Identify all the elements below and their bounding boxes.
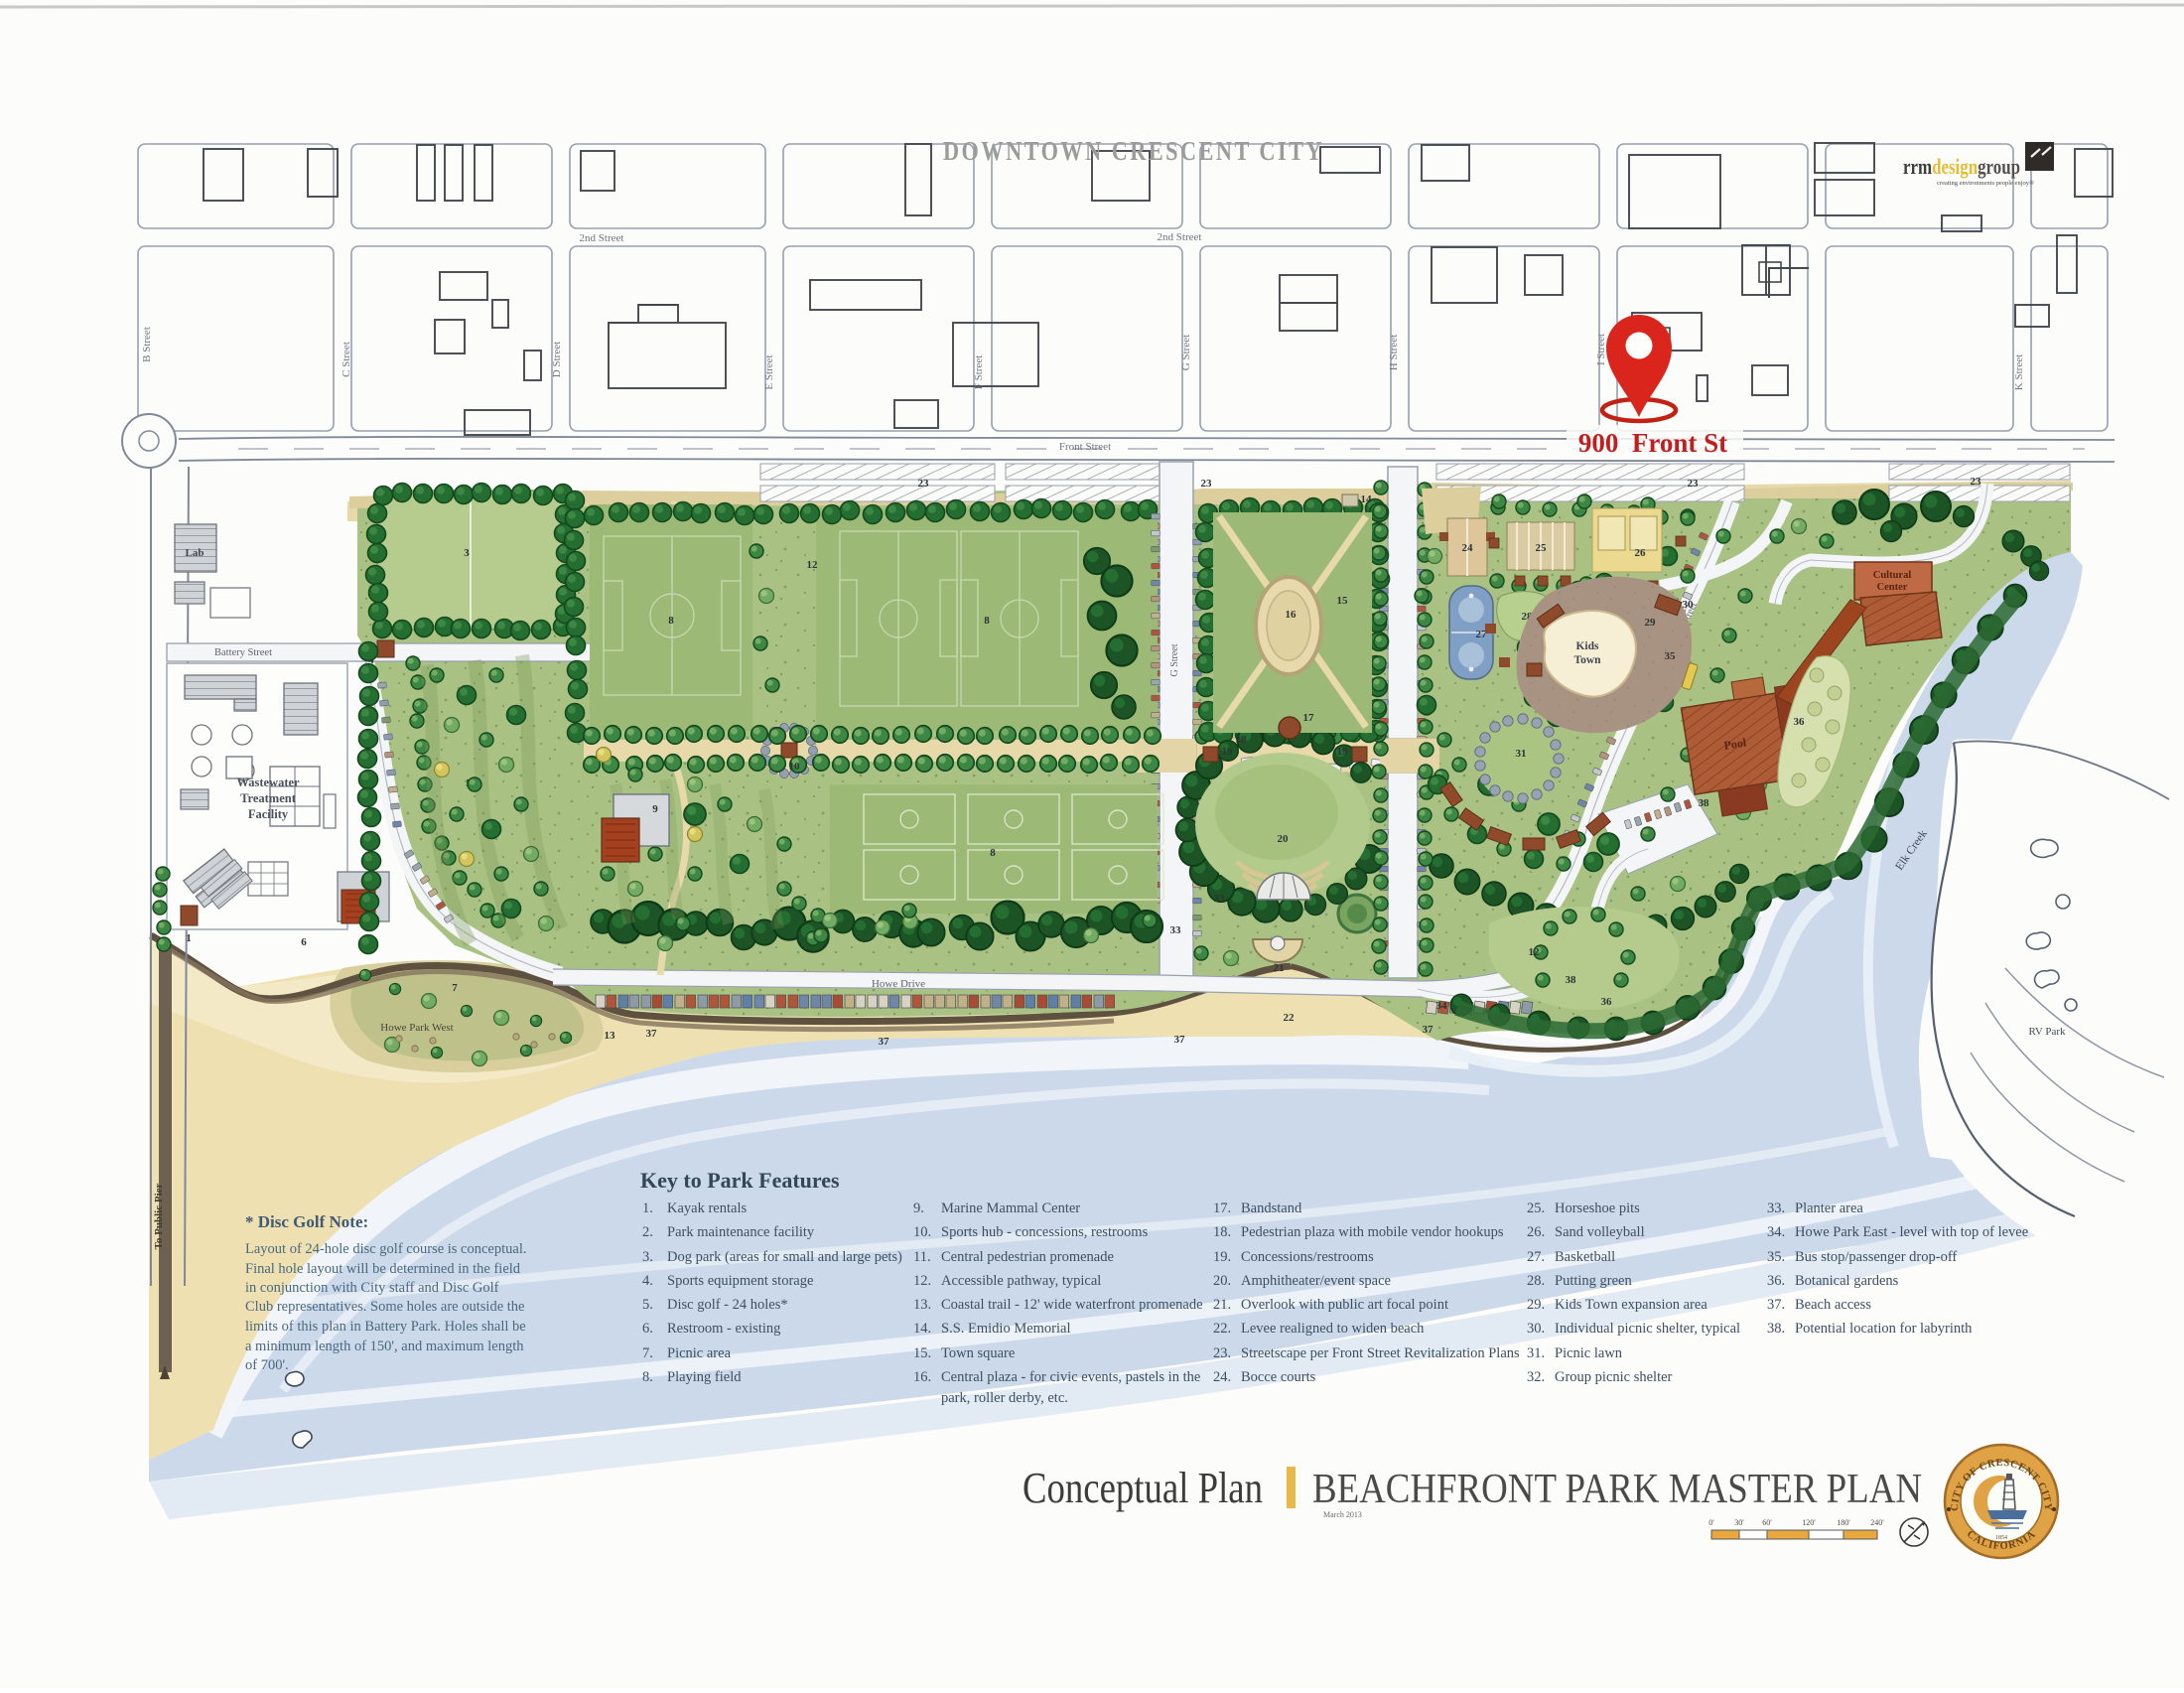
svg-text:Final hole layout will be dete: Final hole layout will be determined in … bbox=[245, 1261, 521, 1277]
svg-text:23: 23 bbox=[918, 478, 930, 490]
svg-text:E Street: E Street bbox=[763, 354, 775, 389]
svg-text:30: 30 bbox=[1683, 599, 1695, 611]
svg-text:23: 23 bbox=[1201, 478, 1213, 490]
svg-text:33: 33 bbox=[1170, 924, 1182, 936]
svg-text:D Street: D Street bbox=[551, 342, 563, 377]
svg-text:9: 9 bbox=[652, 803, 658, 815]
svg-text:Basketball: Basketball bbox=[1555, 1249, 1615, 1265]
svg-text:Overlook with public art focal: Overlook with public art focal point bbox=[1241, 1297, 1448, 1313]
svg-text:13: 13 bbox=[605, 1030, 616, 1042]
svg-text:180': 180' bbox=[1837, 1518, 1850, 1527]
svg-text:17: 17 bbox=[1303, 712, 1315, 724]
svg-text:Botanical gardens: Botanical gardens bbox=[1795, 1273, 1899, 1289]
svg-text:Beach access: Beach access bbox=[1795, 1297, 1871, 1313]
svg-text:26: 26 bbox=[1635, 547, 1647, 559]
svg-text:Kids: Kids bbox=[1575, 640, 1599, 652]
svg-text:Kayak rentals: Kayak rentals bbox=[667, 1200, 747, 1216]
svg-text:limits of this plan in Battery: limits of this plan in Battery Park. Hol… bbox=[245, 1319, 526, 1335]
svg-text:Club representatives. Some hol: Club representatives. Some holes are out… bbox=[245, 1299, 524, 1315]
svg-text:Central pedestrian promenade: Central pedestrian promenade bbox=[941, 1249, 1114, 1265]
svg-text:8: 8 bbox=[990, 847, 996, 859]
svg-text:30.: 30. bbox=[1527, 1321, 1545, 1337]
svg-text:36: 36 bbox=[1794, 716, 1806, 728]
svg-text:Facility: Facility bbox=[248, 807, 289, 821]
svg-text:120': 120' bbox=[1802, 1518, 1816, 1527]
svg-text:To Public Pier: To Public Pier bbox=[153, 1183, 165, 1249]
svg-text:Layout of 24-hole disc golf co: Layout of 24-hole disc golf course is co… bbox=[245, 1241, 526, 1257]
svg-text:S.S. Emidio Memorial: S.S. Emidio Memorial bbox=[941, 1321, 1071, 1337]
svg-text:of 700'.: of 700'. bbox=[245, 1357, 289, 1373]
svg-text:3.: 3. bbox=[642, 1249, 653, 1265]
svg-text:Picnic area: Picnic area bbox=[667, 1345, 732, 1361]
svg-text:Accessible pathway, typical: Accessible pathway, typical bbox=[941, 1273, 1101, 1289]
svg-text:8: 8 bbox=[984, 615, 990, 627]
svg-text:23: 23 bbox=[1971, 476, 1982, 488]
svg-text:60': 60' bbox=[1762, 1518, 1772, 1527]
svg-text:RV Park: RV Park bbox=[2028, 1026, 2066, 1038]
svg-text:March 2013: March 2013 bbox=[1323, 1510, 1362, 1519]
svg-text:Group picnic shelter: Group picnic shelter bbox=[1555, 1369, 1673, 1385]
svg-text:Treatment: Treatment bbox=[240, 791, 297, 805]
svg-text:18: 18 bbox=[1236, 734, 1248, 746]
svg-text:37: 37 bbox=[879, 1036, 890, 1048]
svg-text:Concessions/restrooms: Concessions/restrooms bbox=[1241, 1249, 1374, 1265]
svg-text:15.: 15. bbox=[913, 1345, 931, 1361]
svg-text:Restroom - existing: Restroom - existing bbox=[667, 1321, 780, 1337]
svg-text:35.: 35. bbox=[1767, 1249, 1785, 1265]
svg-text:Front Street: Front Street bbox=[1059, 441, 1111, 453]
svg-text:38: 38 bbox=[1566, 974, 1577, 986]
svg-text:Center: Center bbox=[1877, 582, 1908, 593]
svg-text:Picnic lawn: Picnic lawn bbox=[1555, 1345, 1623, 1361]
svg-text:* Disc Golf Note:: * Disc Golf Note: bbox=[245, 1212, 368, 1231]
svg-text:14.: 14. bbox=[913, 1321, 931, 1337]
svg-text:Horseshoe pits: Horseshoe pits bbox=[1555, 1200, 1640, 1216]
svg-text:37: 37 bbox=[646, 1028, 658, 1040]
svg-text:29: 29 bbox=[1645, 617, 1657, 629]
svg-text:25: 25 bbox=[1536, 542, 1548, 554]
svg-text:Town: Town bbox=[1573, 654, 1601, 666]
svg-text:36.: 36. bbox=[1767, 1273, 1785, 1289]
svg-text:Disc golf - 24 holes*: Disc golf - 24 holes* bbox=[667, 1297, 788, 1313]
svg-text:Bandstand: Bandstand bbox=[1241, 1200, 1302, 1216]
svg-text:Putting green: Putting green bbox=[1555, 1273, 1632, 1289]
svg-text:24.: 24. bbox=[1213, 1369, 1231, 1385]
svg-text:DOWNTOWN CRESCENT CITY: DOWNTOWN CRESCENT CITY bbox=[943, 136, 1324, 166]
svg-text:18.: 18. bbox=[1213, 1224, 1231, 1240]
svg-text:Town square: Town square bbox=[941, 1345, 1015, 1361]
svg-text:2nd Street: 2nd Street bbox=[580, 232, 624, 244]
svg-text:park, roller derby, etc.: park, roller derby, etc. bbox=[941, 1390, 1068, 1406]
svg-text:36: 36 bbox=[1601, 996, 1613, 1008]
svg-text:1.: 1. bbox=[642, 1200, 653, 1216]
svg-text:19: 19 bbox=[1222, 746, 1234, 758]
svg-text:Marine Mammal Center: Marine Mammal Center bbox=[941, 1200, 1080, 1216]
svg-text:21.: 21. bbox=[1213, 1297, 1231, 1313]
svg-text:0': 0' bbox=[1708, 1518, 1714, 1527]
svg-text:19.: 19. bbox=[1213, 1249, 1231, 1265]
svg-text:15: 15 bbox=[1337, 595, 1349, 607]
svg-text:12: 12 bbox=[1529, 946, 1541, 958]
svg-text:12: 12 bbox=[807, 559, 819, 571]
svg-text:32.: 32. bbox=[1527, 1369, 1545, 1385]
svg-text:3: 3 bbox=[464, 547, 470, 559]
svg-text:16: 16 bbox=[1286, 609, 1297, 621]
svg-text:K Street: K Street bbox=[2013, 354, 2025, 390]
svg-text:23.: 23. bbox=[1213, 1345, 1231, 1361]
svg-text:G Street: G Street bbox=[1180, 335, 1192, 370]
svg-text:17.: 17. bbox=[1213, 1200, 1231, 1216]
svg-text:Potential location for labyrin: Potential location for labyrinth bbox=[1795, 1321, 1973, 1337]
svg-text:5.: 5. bbox=[642, 1297, 653, 1313]
svg-text:Conceptual Plan: Conceptual Plan bbox=[1023, 1464, 1263, 1512]
svg-text:Dog park (areas for small and: Dog park (areas for small and large pets… bbox=[667, 1249, 902, 1265]
svg-text:Park maintenance facility: Park maintenance facility bbox=[667, 1224, 815, 1240]
svg-text:22.: 22. bbox=[1213, 1321, 1231, 1337]
svg-text:rrmdesigngroup: rrmdesigngroup bbox=[1903, 154, 2020, 179]
svg-text:a minimum length of 150', and: a minimum length of 150', and maximum le… bbox=[245, 1339, 524, 1354]
svg-text:Planter area: Planter area bbox=[1795, 1200, 1863, 1216]
svg-text:Battery Street: Battery Street bbox=[214, 647, 272, 658]
svg-text:Central plaza - for civic even: Central plaza - for civic events, pastel… bbox=[941, 1369, 1200, 1385]
svg-text:38.: 38. bbox=[1767, 1321, 1785, 1337]
svg-text:4.: 4. bbox=[642, 1273, 653, 1289]
svg-text:24: 24 bbox=[1462, 542, 1474, 554]
svg-text:20: 20 bbox=[1278, 833, 1290, 845]
svg-text:Sports hub - concessions, rest: Sports hub - concessions, restrooms bbox=[941, 1224, 1149, 1240]
svg-text:10: 10 bbox=[789, 761, 801, 773]
svg-text:8.: 8. bbox=[642, 1369, 653, 1385]
svg-text:1: 1 bbox=[186, 932, 192, 944]
svg-text:I Street: I Street bbox=[1595, 334, 1607, 365]
svg-text:28.: 28. bbox=[1527, 1273, 1545, 1289]
svg-text:37: 37 bbox=[1174, 1034, 1186, 1046]
svg-text:34: 34 bbox=[1436, 1000, 1448, 1012]
svg-text:31: 31 bbox=[1516, 748, 1527, 760]
svg-text:30': 30' bbox=[1734, 1518, 1744, 1527]
svg-text:38: 38 bbox=[1699, 797, 1710, 809]
svg-text:240': 240' bbox=[1870, 1518, 1884, 1527]
svg-text:H Street: H Street bbox=[1388, 335, 1400, 370]
svg-text:Kids Town expansion area: Kids Town expansion area bbox=[1555, 1297, 1707, 1313]
svg-text:Cultural: Cultural bbox=[1873, 570, 1912, 581]
svg-text:21: 21 bbox=[1274, 962, 1285, 974]
svg-text:7.: 7. bbox=[642, 1345, 653, 1361]
svg-text:9.: 9. bbox=[913, 1200, 924, 1216]
svg-text:Key to Park Features: Key to Park Features bbox=[640, 1168, 840, 1193]
svg-text:Sports equipment storage: Sports equipment storage bbox=[667, 1273, 813, 1289]
svg-text:31.: 31. bbox=[1527, 1345, 1545, 1361]
svg-text:Sand volleyball: Sand volleyball bbox=[1555, 1224, 1645, 1240]
svg-text:2.: 2. bbox=[642, 1224, 653, 1240]
svg-text:Levee realigned to widen beach: Levee realigned to widen beach bbox=[1241, 1321, 1425, 1337]
svg-text:6.: 6. bbox=[642, 1321, 653, 1337]
svg-text:7: 7 bbox=[452, 982, 458, 994]
svg-text:23: 23 bbox=[1688, 478, 1700, 490]
svg-text:F Street: F Street bbox=[973, 355, 985, 390]
svg-text:34.: 34. bbox=[1767, 1224, 1785, 1240]
svg-text:Lab: Lab bbox=[186, 547, 205, 559]
svg-text:Individual picnic shelter, typ: Individual picnic shelter, typical bbox=[1555, 1321, 1740, 1337]
svg-text:26.: 26. bbox=[1527, 1224, 1545, 1240]
svg-text:10.: 10. bbox=[913, 1224, 931, 1240]
svg-text:25.: 25. bbox=[1527, 1200, 1545, 1216]
svg-text:20.: 20. bbox=[1213, 1273, 1231, 1289]
svg-text:C Street: C Street bbox=[341, 342, 352, 377]
svg-text:27.: 27. bbox=[1527, 1249, 1545, 1265]
svg-text:Playing field: Playing field bbox=[667, 1369, 742, 1385]
svg-text:Bus stop/passenger drop-off: Bus stop/passenger drop-off bbox=[1795, 1249, 1957, 1265]
svg-text:22: 22 bbox=[1284, 1012, 1296, 1024]
svg-text:Coastal trail - 12' wide water: Coastal trail - 12' wide waterfront prom… bbox=[941, 1297, 1203, 1313]
svg-text:Amphitheater/event space: Amphitheater/event space bbox=[1241, 1273, 1391, 1289]
svg-text:11.: 11. bbox=[913, 1249, 931, 1265]
svg-text:2nd Street: 2nd Street bbox=[1158, 231, 1202, 243]
svg-text:13.: 13. bbox=[913, 1297, 931, 1313]
svg-text:33: 33 bbox=[1214, 893, 1226, 905]
svg-text:Wastewater: Wastewater bbox=[236, 776, 300, 789]
svg-text:900 Front St: 900 Front St bbox=[1578, 428, 1727, 458]
svg-text:12.: 12. bbox=[913, 1273, 931, 1289]
svg-text:16.: 16. bbox=[913, 1369, 931, 1385]
svg-text:Bocce courts: Bocce courts bbox=[1241, 1369, 1316, 1385]
svg-text:37.: 37. bbox=[1767, 1297, 1785, 1313]
svg-text:Pedestrian plaza with mobile v: Pedestrian plaza with mobile vendor hook… bbox=[1241, 1224, 1504, 1240]
svg-text:29.: 29. bbox=[1527, 1297, 1545, 1313]
svg-text:1854: 1854 bbox=[1995, 1535, 2007, 1541]
svg-text:14: 14 bbox=[1361, 494, 1373, 505]
svg-text:creating environments people e: creating environments people enjoy® bbox=[1937, 180, 2034, 187]
svg-text:BEACHFRONT PARK MASTER PLAN: BEACHFRONT PARK MASTER PLAN bbox=[1312, 1467, 1922, 1512]
svg-text:G Street: G Street bbox=[1169, 643, 1180, 676]
svg-text:35: 35 bbox=[1665, 650, 1677, 662]
svg-text:Howe Park West: Howe Park West bbox=[380, 1022, 453, 1034]
svg-text:37: 37 bbox=[1423, 1024, 1434, 1036]
svg-text:Howe Park East - level with to: Howe Park East - level with top of levee bbox=[1795, 1224, 2028, 1240]
svg-text:33.: 33. bbox=[1767, 1200, 1785, 1216]
svg-text:6: 6 bbox=[301, 936, 307, 948]
svg-text:8: 8 bbox=[668, 615, 674, 627]
svg-text:in conjunction with City staff: in conjunction with City staff and Disc … bbox=[245, 1280, 499, 1296]
svg-text:19: 19 bbox=[1337, 746, 1349, 758]
svg-text:B Street: B Street bbox=[141, 327, 153, 362]
svg-text:Streetscape per Front Street R: Streetscape per Front Street Revitalizat… bbox=[1241, 1345, 1520, 1361]
svg-text:Howe Drive: Howe Drive bbox=[872, 978, 925, 990]
